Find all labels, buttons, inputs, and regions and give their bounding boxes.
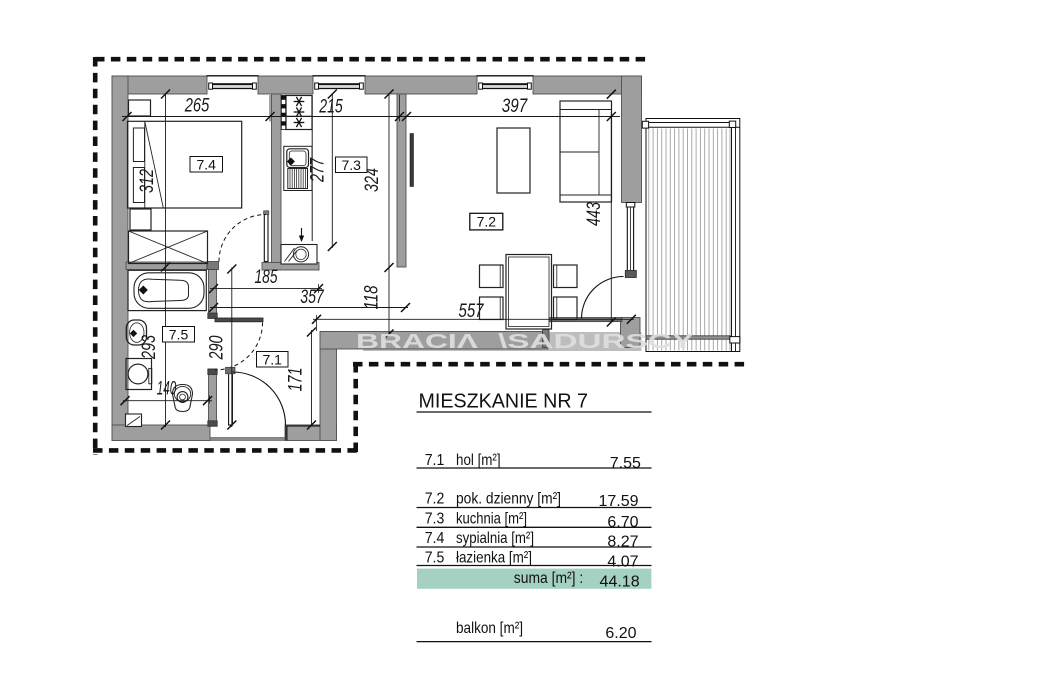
svg-text:sypialnia [m²]: sypialnia [m²] [456,530,534,547]
svg-text:MIESZKANIE NR 7: MIESZKANIE NR 7 [419,390,589,412]
svg-text:312: 312 [137,169,158,193]
svg-text:kuchnia [m²]: kuchnia [m²] [456,510,527,527]
svg-text:357: 357 [300,287,325,308]
svg-text:7.55: 7.55 [610,455,641,472]
svg-text:7.2: 7.2 [425,491,445,508]
svg-text:7.3: 7.3 [341,157,361,173]
svg-text:hol [m²]: hol [m²] [456,452,501,469]
svg-text:\SADURSCY: \SADURSCY [498,330,695,353]
svg-text:7.1: 7.1 [262,351,282,367]
svg-text:łazienka [m²]: łazienka [m²] [456,550,532,567]
svg-text:7.1: 7.1 [425,452,445,469]
svg-text:7.5: 7.5 [169,326,189,342]
svg-text:171: 171 [286,368,307,392]
svg-text:443: 443 [584,202,605,226]
svg-text:265: 265 [184,96,210,117]
svg-text:7.4: 7.4 [425,530,445,547]
svg-text:suma [m²] :: suma [m²] : [514,570,583,587]
svg-text:7.2: 7.2 [477,214,497,230]
svg-text:44.18: 44.18 [600,573,640,590]
svg-text:balkon [m²]: balkon [m²] [456,620,523,637]
svg-text:7.5: 7.5 [425,550,445,567]
svg-text:293: 293 [139,335,160,360]
svg-text:277: 277 [308,157,329,183]
svg-text:6.20: 6.20 [605,625,636,642]
svg-text:17.59: 17.59 [598,493,638,510]
svg-text:397: 397 [502,96,529,117]
svg-text:557: 557 [459,301,485,322]
svg-text:290: 290 [207,335,228,360]
svg-text:7.4: 7.4 [196,156,216,172]
svg-text:BRACIΛ: BRACIΛ [356,330,478,353]
svg-text:215: 215 [319,97,344,118]
svg-text:4.07: 4.07 [607,553,638,570]
svg-text:185: 185 [255,267,278,288]
svg-text:pok. dzienny [m²]: pok. dzienny [m²] [456,491,561,508]
svg-text:140: 140 [157,379,177,400]
svg-text:118: 118 [362,285,383,309]
svg-text:8.27: 8.27 [607,534,638,551]
svg-text:6.70: 6.70 [607,514,638,531]
svg-text:7.3: 7.3 [425,510,445,527]
